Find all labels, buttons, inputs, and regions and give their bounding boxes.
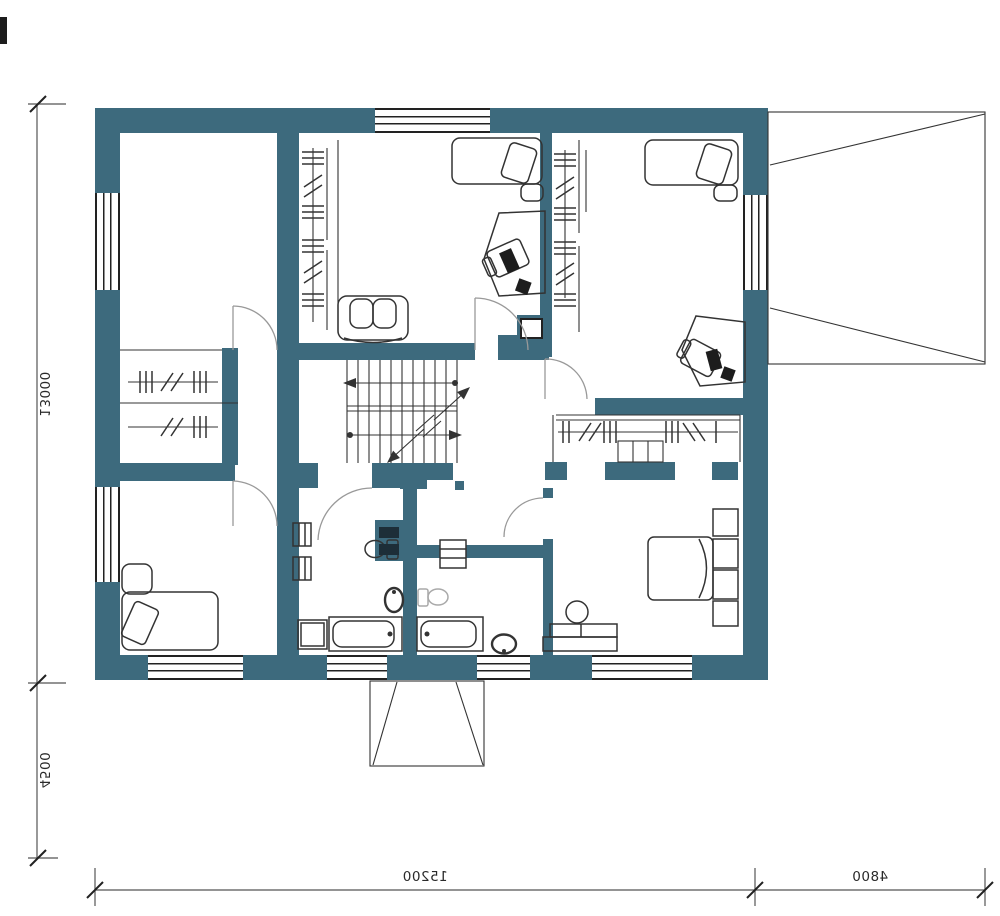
wall-int-plumbing-flange [375, 520, 403, 561]
wall-int-closet-side [222, 348, 238, 465]
wall-pier-wardrobe-1 [545, 462, 567, 480]
window-bottom-bedroom [148, 655, 243, 680]
sink-bath-2 [492, 635, 516, 654]
wall-pier-wardrobe-3 [712, 462, 738, 480]
dimension-label-height-lower: 4500 [36, 752, 52, 788]
bathtub-2 [417, 617, 483, 651]
closet-hall-lower [120, 403, 238, 438]
closet-hall-upper [120, 350, 222, 393]
bed-nursery-2 [645, 140, 738, 201]
desk-nursery-1 [479, 211, 545, 296]
wall-top-left [95, 108, 375, 133]
wall-top-right [490, 108, 768, 133]
bed-single-bottom-left [120, 564, 218, 650]
wall-int-chimney-foot [498, 335, 517, 360]
dimension-label-width-right: 4800 [852, 869, 888, 885]
door-bedroom [233, 481, 277, 526]
wall-left-1 [95, 108, 120, 193]
door-master-bedroom [504, 498, 543, 537]
dimension-label-width-main: 15200 [402, 869, 447, 885]
window-bottom-bath1 [327, 655, 387, 680]
bed-master [648, 509, 738, 626]
dresser-master [543, 624, 617, 651]
wall-bottom-1 [95, 655, 148, 680]
roof-overhang [768, 112, 985, 364]
window-left-lower [95, 487, 120, 582]
wall-right-2 [743, 290, 768, 680]
wall-pier-wardrobe-2 [605, 462, 675, 480]
closet-nursery-2 [554, 140, 586, 332]
door-top-left-room [233, 306, 277, 350]
staircase [343, 360, 470, 463]
wall-int-corridor-east-2 [543, 539, 553, 655]
wall-bottom-4 [530, 655, 592, 680]
sink-bath-1 [385, 588, 403, 612]
sofa [338, 296, 408, 343]
stool-master [566, 601, 588, 623]
window-right [743, 195, 768, 290]
closet-nursery-1 [302, 140, 338, 333]
sheet-corner-mark [0, 17, 7, 44]
door-nursery-2 [545, 359, 587, 399]
plan-linework [0, 0, 1000, 916]
dimension-lines [28, 96, 993, 906]
toilet-bath-2 [418, 589, 448, 606]
wall-int-corner-nub [455, 481, 464, 490]
wall-int-bedroom-top-left [95, 463, 235, 481]
wall-int-master-north [595, 398, 743, 415]
wall-bottom-2 [243, 655, 327, 680]
wall-int-corridor-east-1 [543, 488, 553, 498]
dimension-label-height-main: 13000 [36, 371, 52, 416]
shower-tray [298, 620, 327, 649]
wall-int-hall-top [299, 343, 475, 360]
desk-nursery-2 [674, 316, 745, 386]
wall-int-bath-divider [403, 488, 417, 655]
wardrobe-master [553, 415, 740, 462]
wall-int-vertical-left [277, 133, 299, 463]
balcony-canopy [370, 681, 484, 766]
door-bathroom-1 [318, 488, 372, 540]
floor-plan-canvas: 13000 4500 15200 4800 [0, 0, 1000, 916]
wall-bottom-3 [387, 655, 477, 680]
wall-right-1 [743, 108, 768, 195]
wall-int-bath-top-2 [372, 463, 403, 488]
wall-bottom-5 [692, 655, 768, 680]
wall-int-bath-top-3 [403, 463, 453, 480]
wall-left-2 [95, 290, 120, 487]
wall-int-corridor-south [417, 545, 543, 558]
window-bottom-master [592, 655, 692, 680]
window-left-upper [95, 193, 120, 290]
window-top [375, 108, 490, 133]
window-bottom-bath2 [477, 655, 530, 680]
bed-nursery-1 [452, 138, 543, 201]
bathtub-1 [329, 617, 402, 651]
wall-int-bath-west [277, 480, 299, 655]
chimney-flue [520, 318, 543, 339]
